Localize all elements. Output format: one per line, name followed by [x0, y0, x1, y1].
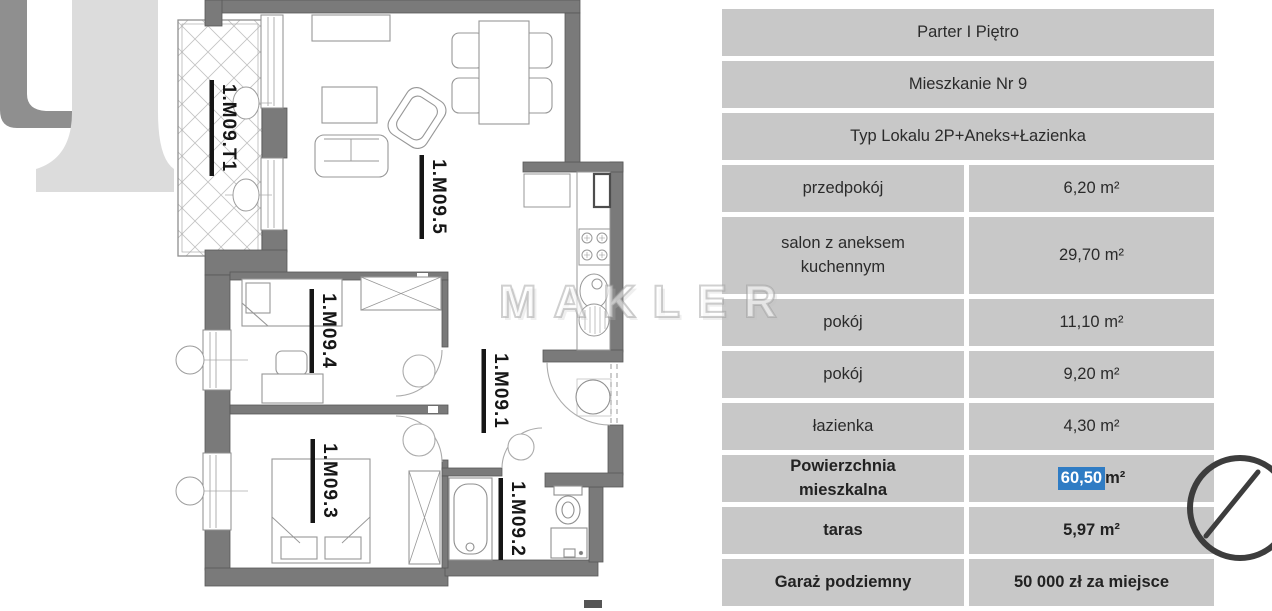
table-row: taras 5,97 m² [722, 507, 1214, 554]
washing-machine [551, 528, 587, 558]
entrance-door-dashed [611, 364, 617, 424]
room-name-cell: salon z aneksem kuchennym [722, 217, 964, 294]
room-label-bedroom2: 1.M09.3 [311, 439, 341, 523]
svg-text:1.M09.T1: 1.M09.T1 [218, 84, 239, 172]
brand-logo-watermark [0, 0, 174, 192]
table-row: przedpokój 6,20 m² [722, 165, 1214, 212]
room-label-hallway: 1.M09.1 [482, 349, 512, 433]
svg-text:1.M09.4: 1.M09.4 [318, 293, 339, 369]
kitchen [524, 172, 610, 350]
room-name-cell: łazienka [722, 403, 964, 450]
table-row: pokój 11,10 m² [722, 299, 1214, 346]
room-name-cell: pokój [722, 351, 964, 398]
bedroom2-furniture [272, 459, 440, 564]
room-name-cell: pokój [722, 299, 964, 346]
room-label-living: 1.M09.5 [420, 155, 450, 239]
stove [579, 229, 610, 265]
compass-icon [1182, 448, 1272, 568]
garage-label: Garaż podziemny [722, 559, 964, 606]
table-row: Powierzchnia mieszkalna 60,50 m² [722, 455, 1214, 502]
area-unit: m² [1105, 467, 1125, 491]
selected-area-value: 60,50 [1058, 467, 1105, 491]
toilet [554, 486, 582, 524]
fridge [524, 174, 570, 207]
garage-price-cell: 50 000 zł za miejsce [969, 559, 1214, 606]
table-row: Parter I Piętro [722, 9, 1214, 56]
room-area-cell: 4,30 m² [969, 403, 1214, 450]
wardrobe [361, 277, 441, 310]
terrace-label: taras [722, 507, 964, 554]
table-row: pokój 9,20 m² [722, 351, 1214, 398]
svg-text:1.M09.1: 1.M09.1 [490, 353, 511, 429]
sofa [315, 135, 388, 177]
room-area-cell: 29,70 m² [969, 217, 1214, 294]
room-area-cell: 11,10 m² [969, 299, 1214, 346]
wardrobe [409, 471, 440, 564]
total-area-cell: 60,50 m² [969, 455, 1214, 502]
armchair [384, 83, 450, 152]
apartment-floor-plan: 1.M09.T1 1.M09.5 1.M09.4 1.M09.1 1.M09.3… [0, 0, 716, 608]
table-row: Garaż podziemny 50 000 zł za miejsce [722, 559, 1214, 606]
apartment-spec-table: Parter I Piętro Mieszkanie Nr 9 Typ Loka… [722, 9, 1214, 611]
room-label-terrace: 1.M09.T1 [210, 80, 240, 176]
svg-text:1.M09.5: 1.M09.5 [428, 159, 449, 235]
table-row: łazienka 4,30 m² [722, 403, 1214, 450]
table-row: Mieszkanie Nr 9 [722, 61, 1214, 108]
room-name-cell: przedpokój [722, 165, 964, 212]
floor-plan-page: { "floor_plan": { "watermark_text": "MAK… [0, 0, 1272, 608]
duct-shaft [594, 174, 610, 207]
floor-title: Parter I Piętro [722, 9, 1214, 56]
terrace-area-cell: 5,97 m² [969, 507, 1214, 554]
table-row: Typ Lokalu 2P+Aneks+Łazienka [722, 113, 1214, 160]
total-area-label: Powierzchnia mieszkalna [722, 455, 964, 502]
bottom-plan-fragment [584, 600, 602, 608]
bathtub [449, 478, 492, 560]
unit-type: Typ Lokalu 2P+Aneks+Łazienka [722, 113, 1214, 160]
table-row: salon z aneksem kuchennym 29,70 m² [722, 217, 1214, 294]
room-area-cell: 9,20 m² [969, 351, 1214, 398]
living-room-furniture [312, 15, 552, 177]
svg-text:1.M09.3: 1.M09.3 [319, 443, 340, 519]
room-label-bedroom1: 1.M09.4 [310, 289, 340, 373]
washbasin [576, 379, 611, 416]
svg-text:1.M09.2: 1.M09.2 [507, 481, 528, 557]
room-label-bathroom: 1.M09.2 [499, 478, 529, 560]
apartment-number: Mieszkanie Nr 9 [722, 61, 1214, 108]
room-area-cell: 6,20 m² [969, 165, 1214, 212]
